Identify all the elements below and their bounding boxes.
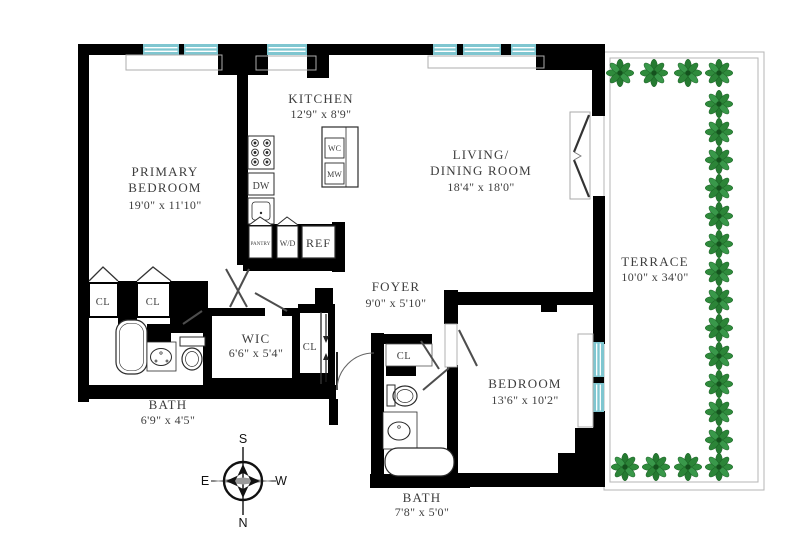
- wall: [541, 292, 557, 312]
- wall: [78, 44, 89, 402]
- living-name: LIVING/: [453, 147, 510, 162]
- compass-south-label: S: [239, 432, 247, 446]
- living-name2: DINING ROOM: [430, 163, 532, 178]
- toilet: [393, 386, 417, 406]
- wine-cooler-label: WC: [328, 144, 341, 153]
- floor-plan: PRIMARY BEDROOM 19'0" x 11'10" KITCHEN 1…: [0, 0, 800, 533]
- wall: [328, 44, 433, 55]
- sill: [578, 334, 593, 427]
- sill: [428, 56, 544, 68]
- living-dims: 18'4" x 18'0": [447, 180, 514, 194]
- wall: [371, 333, 384, 482]
- compass-north-label: N: [238, 516, 247, 530]
- window-icon: [267, 44, 307, 55]
- bath-primary-dims: 6'9" x 4'5": [141, 413, 196, 427]
- wall: [444, 290, 458, 324]
- bedroom-door-leaf: [459, 330, 477, 366]
- wall: [78, 385, 336, 399]
- window-icon: [593, 383, 604, 412]
- pantry-label: PANTRY: [251, 242, 271, 247]
- window-icon: [143, 44, 179, 55]
- compass-rose: S N E W: [201, 432, 287, 530]
- floor-plan-page: PRIMARY BEDROOM 19'0" x 11'10" KITCHEN 1…: [0, 0, 800, 533]
- microwave-label: MW: [327, 170, 342, 179]
- primary-bedroom-name: PRIMARY: [132, 164, 199, 179]
- bath-second-fixtures: [383, 385, 454, 476]
- bedroom-dims: 13'6" x 10'2": [491, 393, 558, 407]
- bedroom-name: BEDROOM: [488, 376, 561, 391]
- wd-door-peak: [277, 217, 298, 225]
- window-icon: [433, 44, 457, 55]
- wall: [458, 292, 605, 305]
- wall: [536, 44, 605, 70]
- window-icon: [593, 342, 604, 377]
- window-icon: [463, 44, 501, 55]
- compass-ew-bar: [214, 478, 272, 485]
- wall: [457, 44, 463, 55]
- sink-drain: [260, 212, 262, 214]
- primary-bedroom-dims: 19'0" x 11'10": [128, 198, 201, 212]
- foyer-name: FOYER: [372, 279, 421, 294]
- closet-label: CL: [303, 342, 317, 353]
- kitchen-name: KITCHEN: [288, 91, 353, 106]
- wall: [593, 376, 604, 383]
- wall: [315, 288, 333, 306]
- bedroom-door-frame: [445, 324, 457, 367]
- terrace-name: TERRACE: [621, 254, 689, 269]
- washer-dryer-label: W/D: [280, 239, 296, 248]
- wall: [558, 453, 605, 487]
- foyer-dims: 9'0" x 5'10": [366, 296, 427, 310]
- wall: [501, 44, 511, 55]
- dishwasher-label: DW: [253, 181, 270, 192]
- wic-name: WIC: [242, 331, 271, 346]
- hall-door-leaf: [230, 269, 249, 307]
- wall: [374, 334, 432, 344]
- compass-east-label: E: [201, 474, 209, 488]
- closet-door-peak: [137, 267, 171, 281]
- wall: [593, 196, 605, 344]
- compass-west-label: W: [275, 474, 287, 488]
- wall: [329, 399, 338, 425]
- wall: [170, 281, 208, 333]
- window-sills: [126, 55, 593, 427]
- terrace-dims: 10'0" x 34'0": [621, 270, 688, 284]
- toilet-tank: [387, 385, 395, 406]
- hall-door-leaf: [226, 269, 247, 307]
- window-icon: [511, 44, 536, 55]
- bath-primary-name: BATH: [149, 397, 188, 412]
- wall: [447, 473, 567, 487]
- bathtub: [385, 448, 454, 476]
- bath-second-dims: 7'8" x 5'0": [395, 505, 450, 519]
- closet-label: CL: [96, 297, 110, 308]
- closet-label: CL: [397, 351, 411, 362]
- bath-second-name: BATH: [403, 490, 442, 505]
- wic-dims: 6'6" x 5'4": [229, 346, 284, 360]
- bath2-door-leaf: [423, 368, 449, 390]
- window-icon: [184, 44, 218, 55]
- wall: [592, 68, 605, 116]
- wall: [147, 324, 171, 343]
- refrigerator-label: REF: [306, 236, 331, 250]
- closet-label: CL: [146, 297, 160, 308]
- wall: [203, 308, 265, 316]
- sill: [126, 55, 222, 70]
- wall: [307, 44, 329, 78]
- toilet-tank: [180, 337, 205, 346]
- entry-door-swing: [337, 353, 374, 390]
- primary-bedroom-name2: BEDROOM: [128, 180, 201, 195]
- closet-door-peak: [89, 267, 118, 281]
- kitchen-dims: 12'9" x 8'9": [291, 107, 352, 121]
